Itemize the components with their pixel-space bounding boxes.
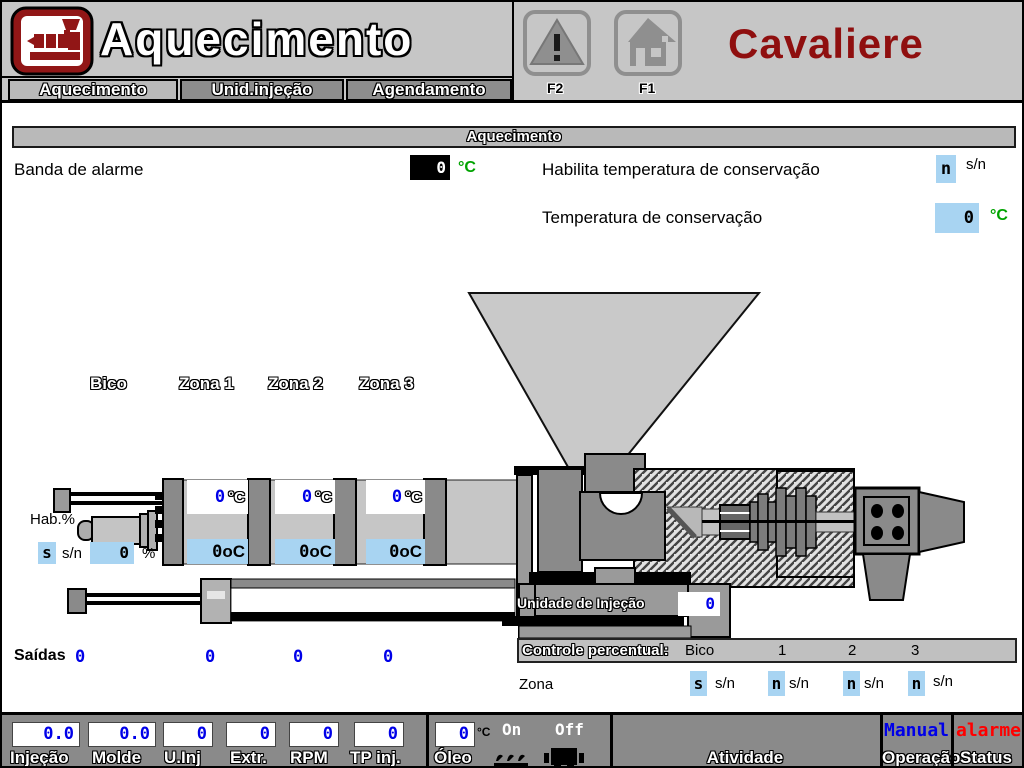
uinj-label: U.Inj	[164, 748, 201, 768]
rpm-value: 0	[289, 722, 339, 747]
controle-percentual-title: Controle percentual:	[522, 642, 669, 659]
controle-unit-bico: s/n	[715, 675, 735, 692]
banda-alarme-field[interactable]: 0	[410, 155, 450, 180]
heater-on-label: On	[502, 720, 521, 739]
saidas-value-2: 0	[205, 647, 215, 667]
home-icon	[618, 14, 678, 72]
extr-label: Extr.	[230, 748, 267, 768]
injection-cylinder	[68, 579, 515, 623]
hmi-screen: Aquecimento F2 F1 Cavaliere Aquecimento …	[0, 0, 1024, 768]
unidade-injecao-field: 0	[678, 592, 720, 616]
zone-3-setpoint: 0 °C	[366, 480, 425, 514]
warning-icon	[527, 14, 587, 72]
hab-enable-unit: s/n	[62, 545, 82, 562]
zone-3-setpoint-unit: °C	[405, 489, 422, 506]
controle-col-1: 1	[778, 642, 786, 659]
temp-conservacao-unit: °C	[990, 207, 1008, 225]
header: Aquecimento F2 F1 Cavaliere Aquecimento …	[2, 2, 1024, 103]
controle-percentual-bar: Controle percentual: Bico 1 2 3	[517, 638, 1017, 663]
controle-field-2[interactable]: n	[843, 671, 860, 696]
hab-percent-field[interactable]: 0	[90, 542, 134, 564]
saidas-value-3: 0	[293, 647, 303, 667]
tpinj-value: 0	[354, 722, 404, 747]
oleo-unit: °C	[477, 725, 490, 739]
status-label: Status	[960, 748, 1012, 768]
zone-2-setpoint-value: 0	[302, 487, 312, 507]
operacao-label: Operação	[882, 748, 960, 768]
oleo-label: Óleo	[434, 748, 472, 768]
divider	[951, 715, 954, 768]
zone-3-actual-unit: oC	[399, 542, 425, 562]
habilita-conservacao-unit: s/n	[966, 156, 986, 173]
molde-value: 0.0	[88, 722, 156, 747]
alarms-button[interactable]	[523, 10, 591, 76]
banda-alarme-label: Banda de alarme	[14, 160, 143, 180]
extr-value: 0	[226, 722, 276, 747]
f2-key-label: F2	[547, 80, 563, 96]
zone-3-setpoint-value: 0	[392, 487, 402, 507]
saidas-value-1: 0	[75, 647, 85, 667]
app-machine-icon	[10, 6, 94, 76]
zone-2-actual-unit: oC	[309, 542, 335, 562]
temp-conservacao-label: Temperatura de conservação	[542, 208, 762, 228]
zone-1-setpoint-unit: °C	[228, 489, 245, 506]
hab-percent-unit: %	[142, 545, 155, 562]
controle-unit-1: s/n	[789, 675, 809, 692]
controle-field-3[interactable]: n	[908, 671, 925, 696]
injecao-label: Injeção	[10, 748, 69, 768]
f1-key-label: F1	[639, 80, 655, 96]
brand-logo: Cavaliere	[728, 20, 924, 68]
hopper	[469, 293, 759, 467]
tab-agendamento[interactable]: Agendamento	[346, 79, 512, 101]
controle-field-1[interactable]: n	[768, 671, 785, 696]
unidade-injecao-label: Unidade de Injeção	[517, 595, 645, 611]
oil-heater-icon[interactable]	[492, 750, 532, 768]
divider	[512, 2, 514, 103]
zone-3-actual[interactable]: 0 oC	[366, 539, 425, 564]
zone-2-setpoint: 0 °C	[275, 480, 335, 514]
operation-mode-value: Manual	[884, 720, 949, 741]
zone-1-setpoint-value: 0	[215, 487, 225, 507]
zone-2-setpoint-unit: °C	[315, 489, 332, 506]
zone-2-actual[interactable]: 0 oC	[275, 539, 335, 564]
habilita-conservacao-field[interactable]: n	[936, 155, 956, 183]
page-title: Aquecimento	[100, 12, 413, 66]
saidas-value-4: 0	[383, 647, 393, 667]
hab-label: Hab.%	[30, 511, 75, 528]
tab-unid-injecao[interactable]: Unid.injeção	[180, 79, 344, 101]
controle-col-2: 2	[848, 642, 856, 659]
pump-off-label: Off	[555, 720, 584, 739]
oil-pump-icon[interactable]	[544, 748, 588, 768]
rpm-label: RPM	[290, 748, 328, 768]
panel-title: Aquecimento	[12, 126, 1016, 148]
saidas-label: Saídas	[14, 647, 66, 665]
zone-1-actual-unit: oC	[222, 542, 248, 562]
zone-3-actual-value: 0	[389, 542, 399, 562]
oleo-value: 0	[435, 722, 475, 747]
controle-unit-3: s/n	[933, 673, 953, 690]
hab-enable-field[interactable]: s	[38, 542, 56, 564]
zone-1-actual[interactable]: 0 oC	[187, 539, 248, 564]
zone-1-actual-value: 0	[212, 542, 222, 562]
status-bar: 0.0 Injeção 0.0 Molde 0 U.Inj 0 Extr. 0 …	[2, 712, 1024, 768]
injecao-value: 0.0	[12, 722, 80, 747]
controle-col-bico: Bico	[685, 642, 714, 659]
divider	[426, 715, 429, 768]
tab-aquecimento[interactable]: Aquecimento	[8, 79, 178, 101]
uinj-value: 0	[163, 722, 213, 747]
controle-col-3: 3	[911, 642, 919, 659]
banda-alarme-unit: °C	[458, 159, 476, 177]
tpinj-label: TP inj.	[350, 748, 401, 768]
divider	[2, 76, 514, 78]
controle-unit-2: s/n	[864, 675, 884, 692]
habilita-conservacao-label: Habilita temperatura de conservação	[542, 160, 820, 180]
controle-field-bico[interactable]: s	[690, 671, 707, 696]
alarm-status-value: alarme	[956, 720, 1021, 741]
atividade-label: Atividade	[610, 748, 880, 768]
zone-1-setpoint: 0 °C	[187, 480, 248, 514]
temp-conservacao-field[interactable]: 0	[935, 203, 979, 233]
controle-row-label: Zona	[519, 676, 553, 693]
molde-label: Molde	[92, 748, 141, 768]
home-button[interactable]	[614, 10, 682, 76]
zone-2-actual-value: 0	[299, 542, 309, 562]
